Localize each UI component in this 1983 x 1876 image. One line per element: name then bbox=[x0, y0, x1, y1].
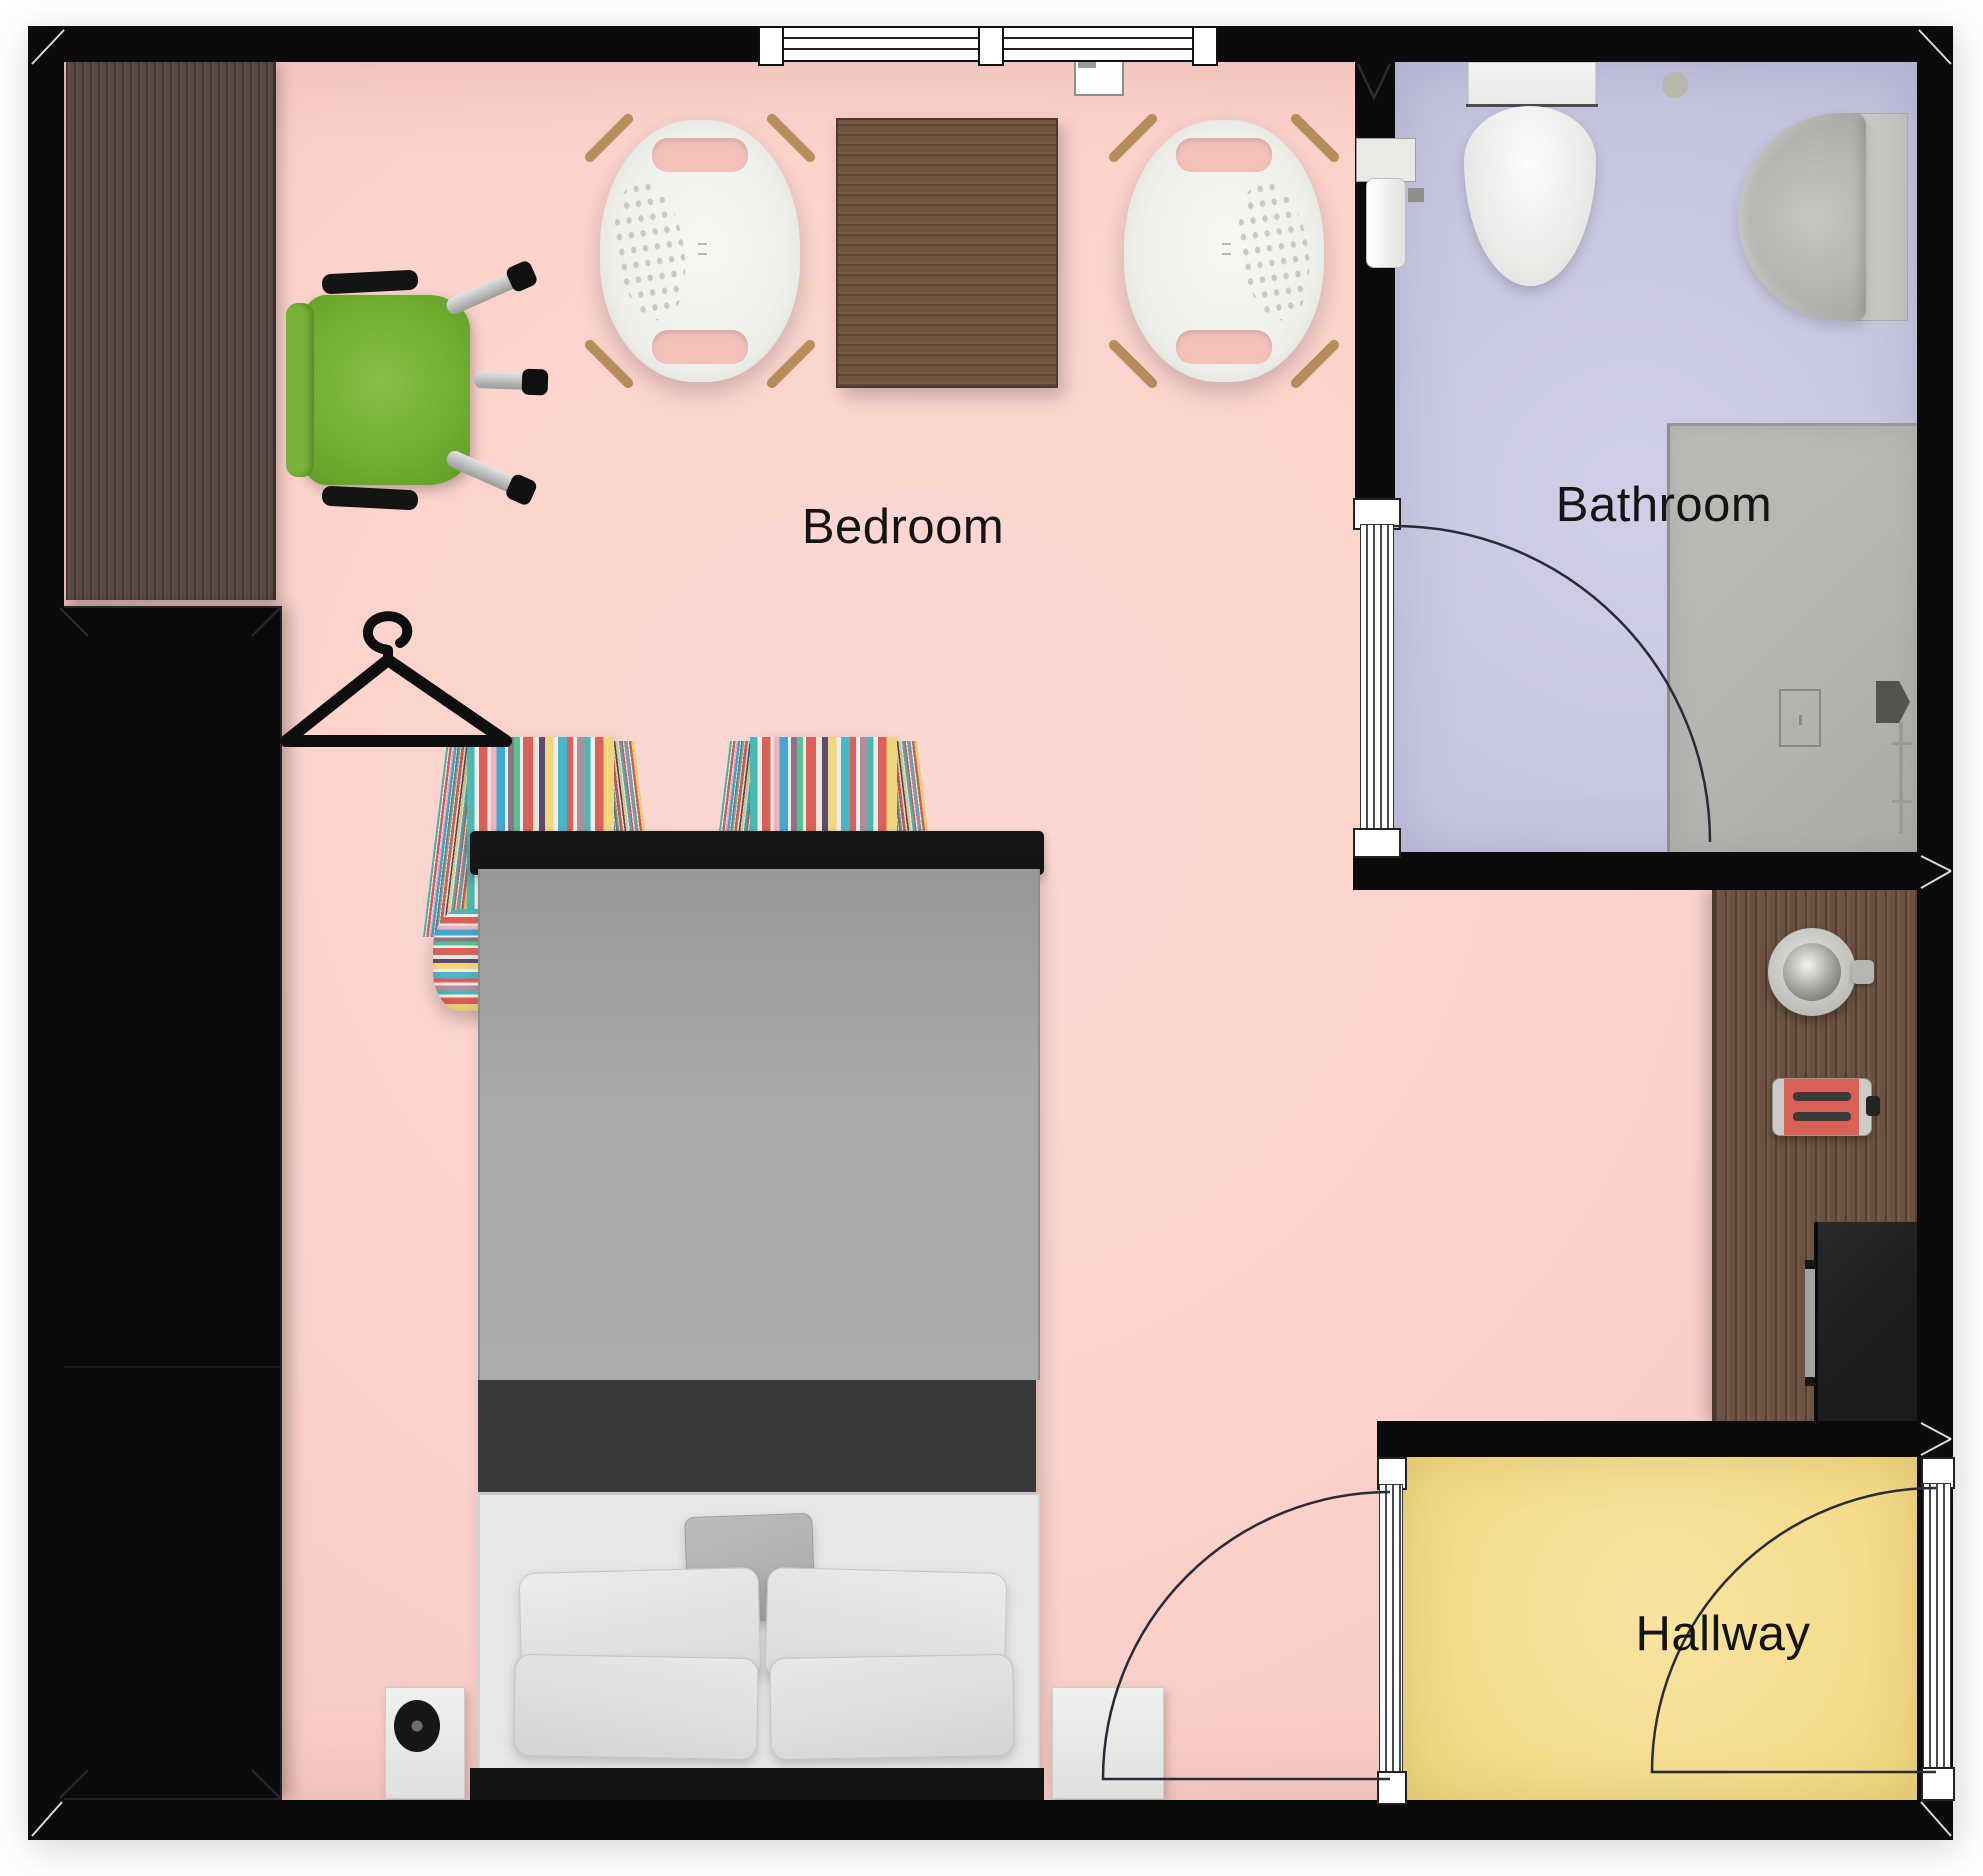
office-chair-backrest bbox=[286, 303, 314, 477]
window-mullion bbox=[758, 26, 784, 66]
window-mullion bbox=[978, 26, 1004, 66]
bed-blanket bbox=[478, 869, 1040, 1380]
entry-door[interactable] bbox=[1923, 1483, 1951, 1771]
toaster-knob bbox=[1866, 1096, 1880, 1116]
lounge-chair-left[interactable] bbox=[594, 112, 806, 390]
chair-shell bbox=[1124, 120, 1324, 382]
toilet-paper-roll bbox=[1366, 178, 1406, 268]
leaf-pattern bbox=[605, 176, 694, 326]
toilet-paper-pin bbox=[1408, 188, 1424, 202]
rail-tick bbox=[1892, 800, 1912, 803]
wall-bottom bbox=[28, 1800, 1953, 1840]
kettle-knob bbox=[1852, 960, 1874, 984]
lounge-chair-right[interactable] bbox=[1118, 112, 1330, 390]
toaster[interactable] bbox=[1772, 1078, 1872, 1136]
shower-drain bbox=[1779, 689, 1821, 747]
hallway-label: Hallway bbox=[1635, 1606, 1810, 1662]
record-disc bbox=[394, 1700, 440, 1752]
chair-slot bbox=[652, 138, 748, 172]
office-chair[interactable] bbox=[300, 295, 470, 485]
kettle[interactable] bbox=[1768, 928, 1856, 1016]
bedroom-door[interactable] bbox=[1379, 1484, 1403, 1775]
door-jamb bbox=[1353, 828, 1401, 858]
nightstand-right[interactable] bbox=[1052, 1687, 1164, 1799]
chair-slot bbox=[1176, 330, 1272, 364]
nightstand-left[interactable] bbox=[385, 1687, 465, 1799]
chair-mark bbox=[1222, 243, 1231, 255]
bed-headboard bbox=[470, 1768, 1044, 1802]
side-table[interactable] bbox=[836, 118, 1058, 388]
wardrobe-seam bbox=[60, 1366, 280, 1368]
fridge-handle bbox=[1805, 1260, 1815, 1386]
window-mullion bbox=[1192, 26, 1218, 66]
toilet-tank bbox=[1468, 62, 1596, 106]
bathroom-door[interactable] bbox=[1360, 524, 1394, 832]
toilet-paper-holder[interactable] bbox=[1356, 138, 1416, 182]
wall-left bbox=[28, 26, 64, 1840]
bathroom-label: Bathroom bbox=[1556, 477, 1772, 533]
bedroom-label: Bedroom bbox=[802, 499, 1004, 555]
shower-rail bbox=[1899, 722, 1903, 834]
door-jamb bbox=[1921, 1767, 1955, 1801]
office-chair-leg bbox=[474, 371, 535, 390]
chair-shell bbox=[600, 120, 800, 382]
chair-slot bbox=[1176, 138, 1272, 172]
toaster-slot bbox=[1793, 1092, 1851, 1101]
mini-fridge[interactable] bbox=[1814, 1222, 1921, 1423]
pillow bbox=[513, 1654, 759, 1760]
chair-slot bbox=[652, 330, 748, 364]
wall-bathroom-bottom bbox=[1353, 852, 1921, 890]
wardrobe[interactable] bbox=[58, 606, 282, 1800]
wall-hallway-top bbox=[1377, 1421, 1921, 1457]
pillow bbox=[769, 1654, 1015, 1760]
floor-plan: Bedroom Bathroom Hallway bbox=[0, 0, 1983, 1876]
bedroom-window[interactable] bbox=[758, 26, 1214, 62]
desk[interactable] bbox=[66, 62, 276, 600]
door-jamb bbox=[1377, 1771, 1407, 1805]
floor-dot bbox=[1662, 72, 1688, 98]
rail-tick bbox=[1892, 742, 1912, 745]
toaster-slot bbox=[1793, 1112, 1851, 1121]
chair-mark bbox=[698, 243, 707, 255]
bed-blanket-fold bbox=[478, 1380, 1036, 1492]
leaf-pattern bbox=[1229, 176, 1318, 326]
